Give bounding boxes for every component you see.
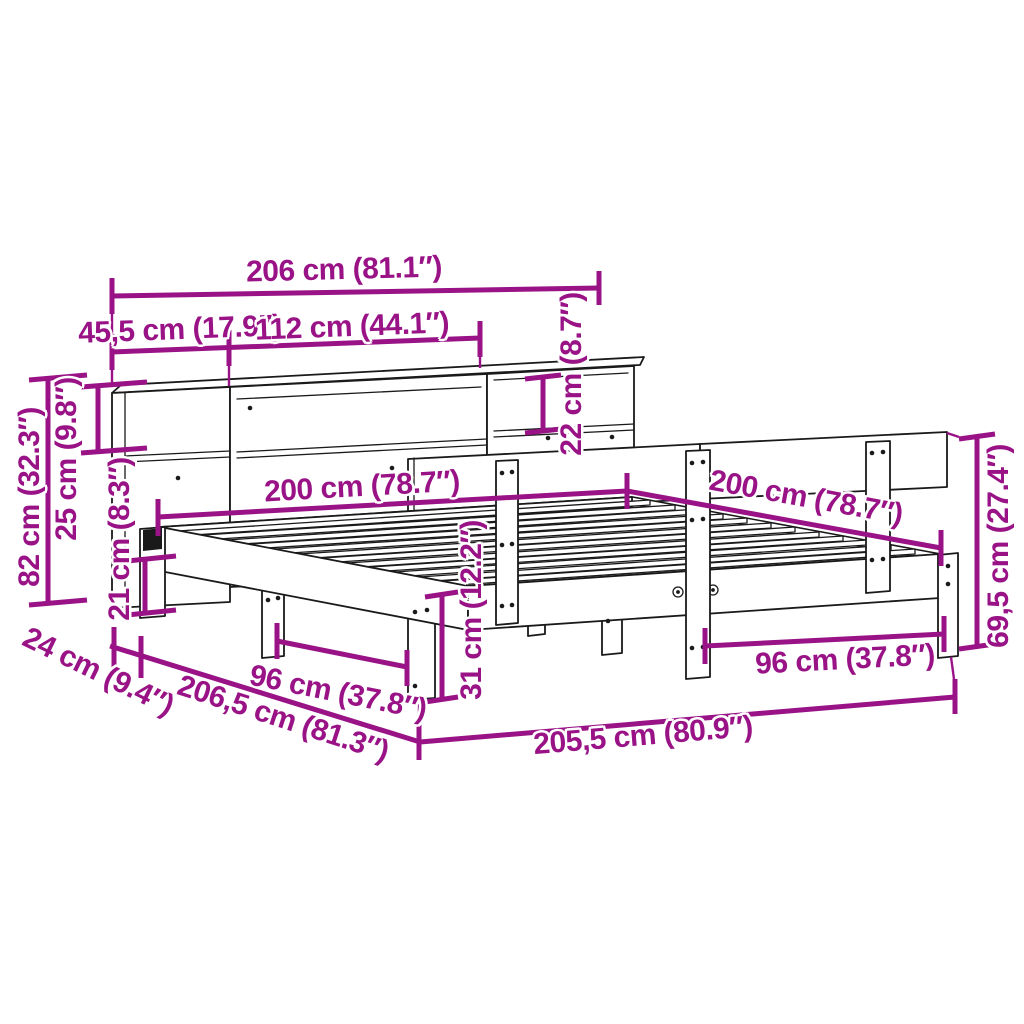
dim-label-upper-shelf-height: 25 cm (9.8″)	[52, 377, 82, 540]
dim-label-frame-height: 31 cm (12.2″)	[457, 520, 487, 700]
dim-label-bookcase-width: 206 cm (81.1″)	[246, 252, 443, 287]
dim-label-rail-height: 69,5 cm (27.4″)	[984, 444, 1014, 648]
dim-label-bookcase-left-section-width: 45,5 cm (17.9″)	[78, 311, 283, 349]
dim-label-shelf-opening-height: 22 cm (8.7″)	[557, 292, 587, 455]
dim-label-bookcase-height: 82 cm (32.3″)	[15, 407, 45, 587]
diagram-canvas: 206 cm (81.1″) 45,5 cm (17.9″) 112 cm (4…	[0, 0, 1024, 1024]
dim-label-bookcase-middle-section-width: 112 cm (44.1″)	[254, 308, 449, 345]
dim-label-under-frame-clearance: 21 cm (8.3″)	[105, 457, 135, 620]
